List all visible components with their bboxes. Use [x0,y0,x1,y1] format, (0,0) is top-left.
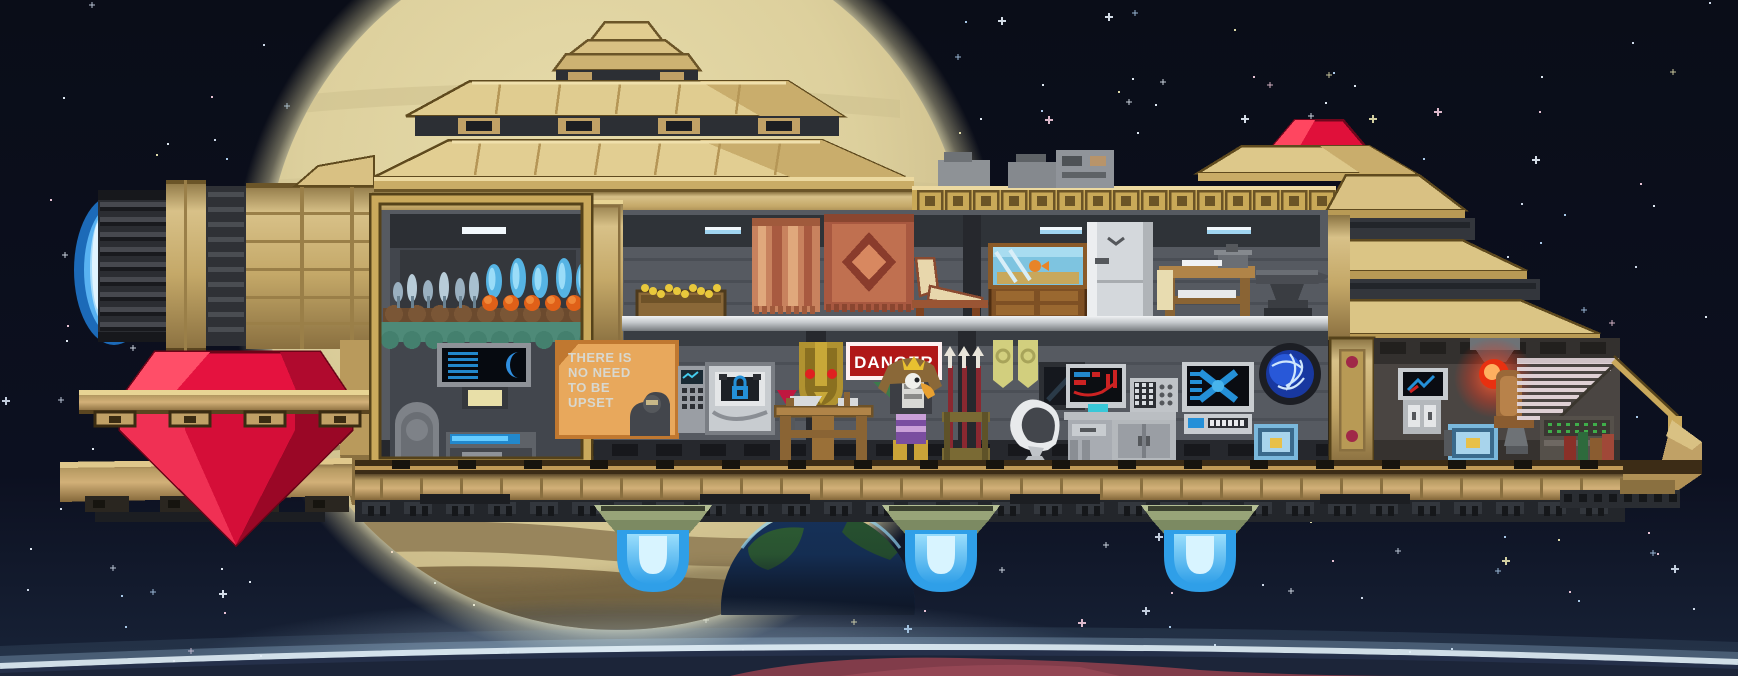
svg-text:TO BE: TO BE [568,380,610,395]
svg-text:THERE IS: THERE IS [568,350,632,365]
svg-text:NO NEED: NO NEED [568,365,631,380]
svg-text:UPSET: UPSET [568,395,614,410]
